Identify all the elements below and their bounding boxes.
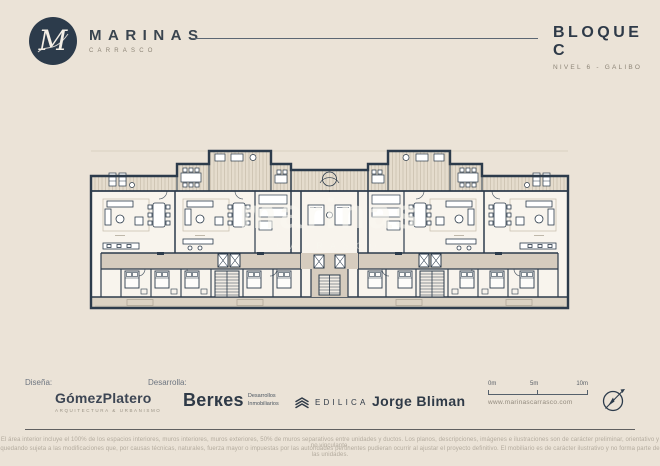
scale-0m: 0m [488, 381, 496, 387]
design-label: Diseña: [25, 378, 52, 387]
gomezplatero-logo: GómezPlatero ARQUITECTURA & URBANISMO [55, 390, 161, 413]
header-divider [192, 38, 538, 39]
footer-divider [25, 429, 635, 430]
logo-letter: M [38, 24, 69, 57]
berkes-tagline-1: Desarrollos [248, 393, 276, 399]
jorge-bliman-logo: Jorge Bliman [372, 393, 466, 409]
gomezplatero-name: GómezPlatero [55, 390, 161, 406]
brand-subname: CARRASCO [89, 48, 205, 54]
develop-label: Desarrolla: [148, 378, 187, 387]
scale-5m: 5m [530, 381, 538, 387]
block-title-group: BLOQUE C NIVEL 6 - GALIBO [553, 24, 660, 71]
berkes-tagline-2: Inmobiliarios [248, 401, 279, 407]
edilica-logo: EDILICA [294, 396, 369, 409]
scale-bar: 0m 5m 10m www.marinascarrasco.com [488, 381, 588, 406]
scale-line [488, 389, 588, 395]
block-title: BLOQUE C [553, 24, 660, 60]
website-url: www.marinascarrasco.com [488, 399, 588, 406]
scale-10m: 10m [576, 381, 588, 387]
block-level-label: NIVEL 6 - GALIBO [553, 64, 660, 71]
brand-block: MARINAS CARRASCO [89, 27, 205, 54]
north-compass-icon [601, 387, 627, 418]
disclaimer-line2: quedando sujeta a las modificaciones que… [0, 446, 660, 458]
berkes-name: Berкes [183, 390, 244, 411]
berkes-tagline: Desarrollos Inmobiliarios [248, 393, 279, 407]
berkes-logo: Berкes Desarrollos Inmobiliarios [183, 390, 279, 411]
edilica-chevron-icon [294, 396, 310, 409]
edilica-name: EDILICA [315, 398, 369, 407]
balcony-strip [91, 297, 568, 308]
brand-name: MARINAS [89, 27, 205, 44]
marinas-logo-icon: M [28, 16, 78, 66]
plan-sheet: M MARINAS CARRASCO BLOQUE C NIVEL 6 - GA… [0, 0, 660, 466]
floor-plan [87, 149, 572, 311]
gomezplatero-tagline: ARQUITECTURA & URBANISMO [55, 408, 161, 413]
